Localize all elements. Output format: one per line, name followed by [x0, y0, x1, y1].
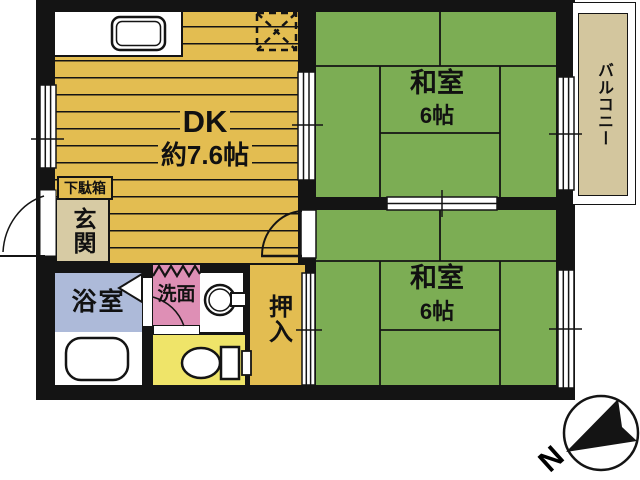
dk-label: DK: [140, 106, 270, 139]
room-toilet: [153, 335, 245, 385]
compass-n-label: N: [532, 440, 570, 479]
toilet-door-opening: [153, 325, 200, 335]
north-arrow-icon: N: [532, 396, 638, 479]
room-balcony: バルコニー: [578, 13, 628, 196]
getabako-cabinet: 下駄箱: [57, 176, 113, 200]
balcony-label: バルコニー: [595, 62, 611, 147]
washroom-label: 洗面: [152, 285, 201, 305]
washitsu-upper-label: 和室: [376, 69, 498, 97]
floor-plan: 玄関 下駄箱 バルコニー: [0, 0, 640, 480]
dk-size-label: 約7.6帖: [122, 142, 288, 169]
getabako-label: 下駄箱: [64, 178, 106, 198]
room-genkan: 玄関: [55, 198, 110, 263]
washing-machine-area: [200, 273, 243, 332]
washitsu-lower-label: 和室: [376, 264, 498, 292]
washitsu-lower-size-label: 6帖: [376, 300, 498, 323]
kitchen-counter: [55, 12, 183, 57]
room-washitsu-lower: [316, 210, 556, 385]
washitsu-upper-size-label: 6帖: [376, 104, 498, 127]
bathtub-area: [55, 332, 142, 385]
bathroom-label: 浴室: [55, 289, 142, 315]
oshiire-label: 押入: [250, 294, 305, 344]
genkan-label: 玄関: [71, 207, 94, 255]
